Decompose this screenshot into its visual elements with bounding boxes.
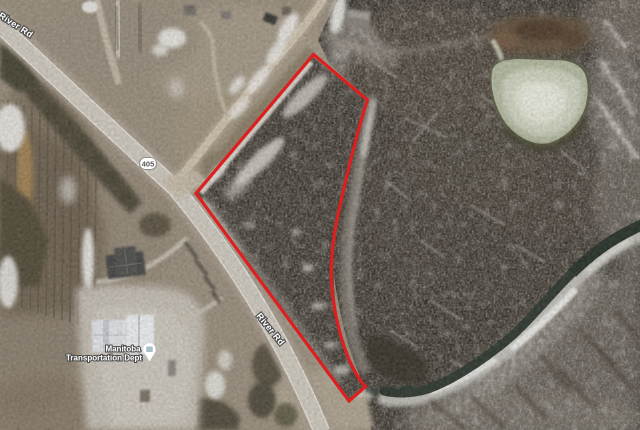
svg-text:405: 405 (142, 160, 155, 169)
svg-text:Manitoba: Manitoba (105, 345, 141, 354)
svg-text:Transportation Dept: Transportation Dept (66, 354, 142, 363)
